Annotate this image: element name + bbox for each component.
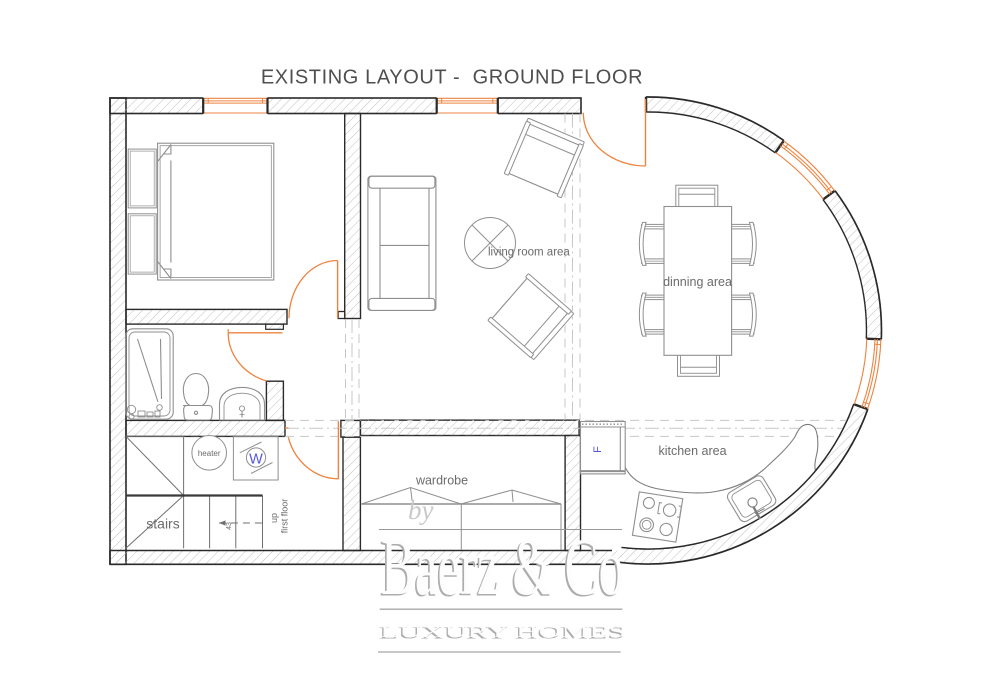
svg-text:heater: heater <box>198 449 221 458</box>
svg-text:stairs: stairs <box>146 516 179 532</box>
svg-text:F: F <box>592 446 604 453</box>
svg-text:43: 43 <box>226 522 233 530</box>
svg-text:up: up <box>269 513 279 523</box>
svg-text:LUXURY HOMES: LUXURY HOMES <box>380 622 626 641</box>
svg-text:kitchen area: kitchen area <box>658 444 726 458</box>
svg-text:first floor: first floor <box>280 499 290 534</box>
svg-text:Baerz & Co: Baerz & Co <box>381 521 624 612</box>
svg-text:living room area: living room area <box>488 247 570 259</box>
svg-text:dinning area: dinning area <box>663 275 732 289</box>
svg-text:EXISTING LAYOUT - GROUND FLOO: EXISTING LAYOUT - GROUND FLOOR <box>261 67 643 89</box>
svg-text:W: W <box>249 452 263 468</box>
svg-text:wardrobe: wardrobe <box>415 474 468 488</box>
